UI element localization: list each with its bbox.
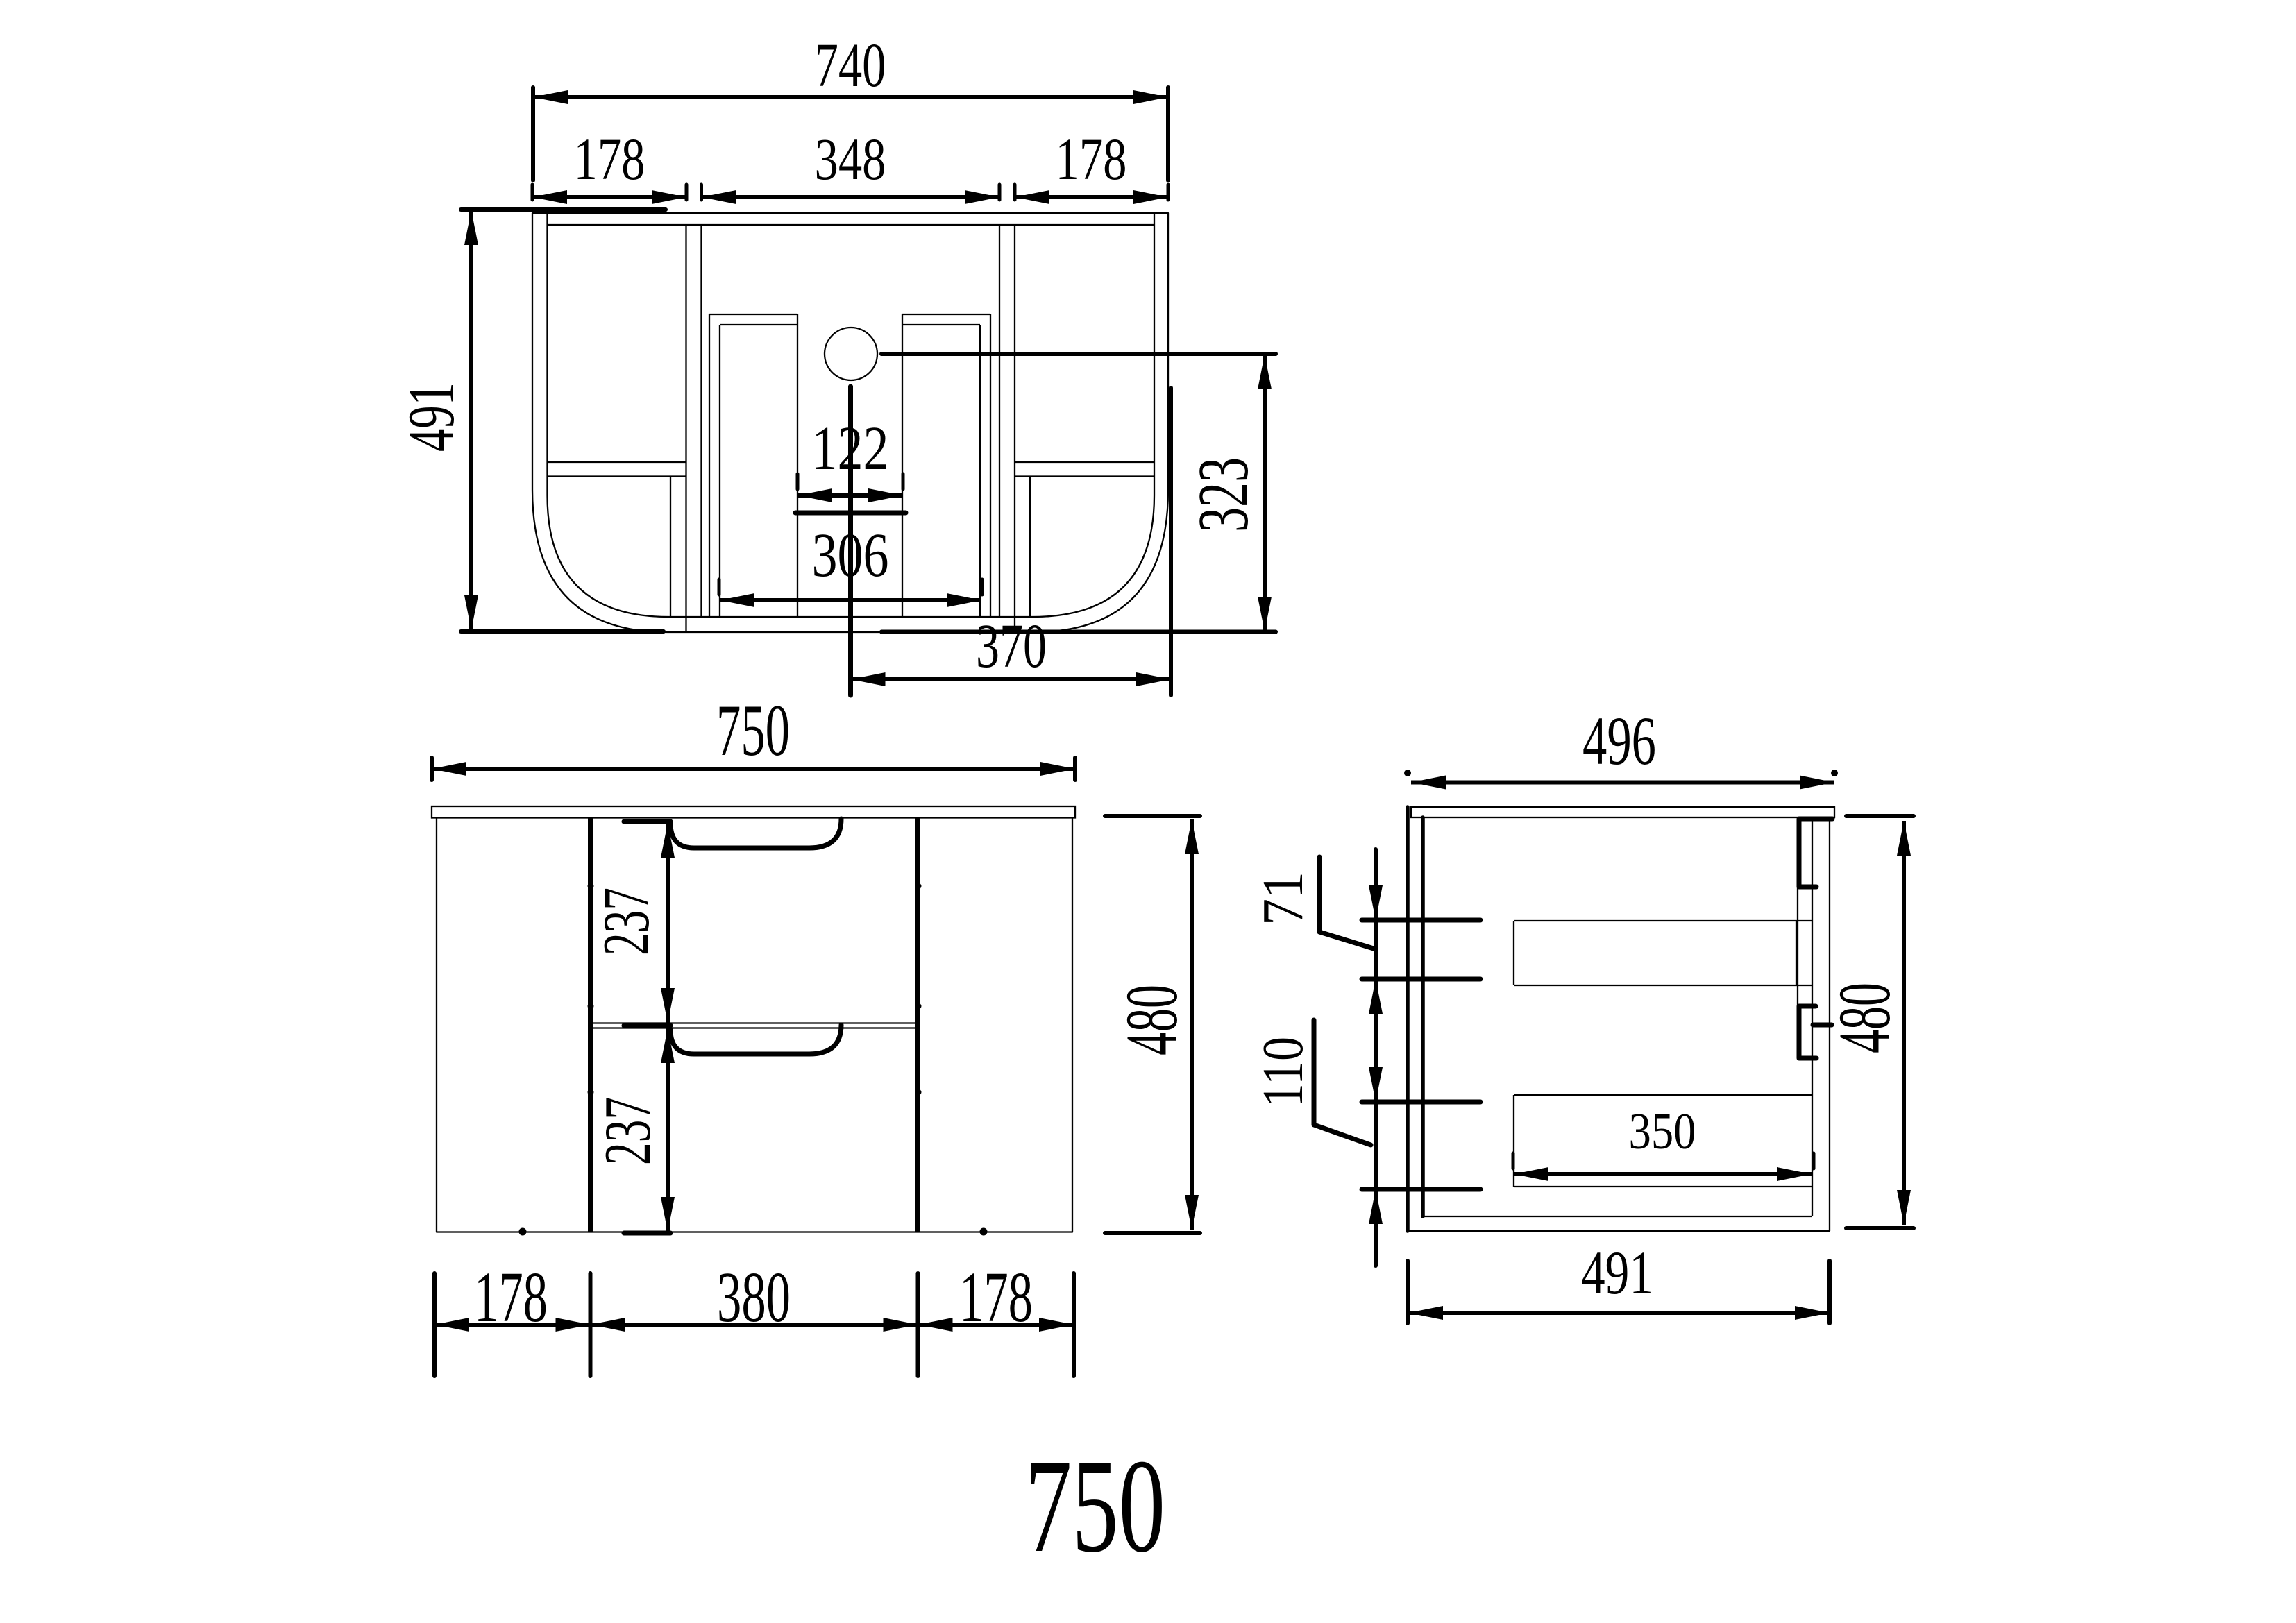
svg-text:480: 480 bbox=[1111, 985, 1193, 1055]
svg-text:178: 178 bbox=[474, 1257, 548, 1337]
svg-text:237: 237 bbox=[589, 887, 663, 955]
svg-text:491: 491 bbox=[394, 382, 468, 452]
svg-text:496: 496 bbox=[1582, 702, 1656, 779]
svg-text:306: 306 bbox=[812, 521, 889, 590]
svg-text:380: 380 bbox=[717, 1257, 791, 1337]
svg-text:491: 491 bbox=[1581, 1239, 1653, 1307]
svg-text:122: 122 bbox=[812, 414, 889, 483]
svg-text:750: 750 bbox=[1025, 1431, 1165, 1580]
svg-text:178: 178 bbox=[959, 1257, 1033, 1337]
svg-text:480: 480 bbox=[1824, 983, 1906, 1053]
svg-text:178: 178 bbox=[574, 126, 645, 192]
svg-text:348: 348 bbox=[815, 126, 886, 192]
svg-text:237: 237 bbox=[591, 1097, 664, 1165]
svg-text:750: 750 bbox=[716, 690, 790, 771]
svg-text:110: 110 bbox=[1251, 1037, 1315, 1107]
svg-text:71: 71 bbox=[1251, 872, 1315, 926]
svg-text:323: 323 bbox=[1183, 457, 1263, 532]
svg-text:370: 370 bbox=[976, 612, 1047, 681]
svg-text:740: 740 bbox=[815, 31, 886, 100]
svg-text:178: 178 bbox=[1056, 126, 1127, 192]
svg-text:350: 350 bbox=[1629, 1103, 1696, 1160]
